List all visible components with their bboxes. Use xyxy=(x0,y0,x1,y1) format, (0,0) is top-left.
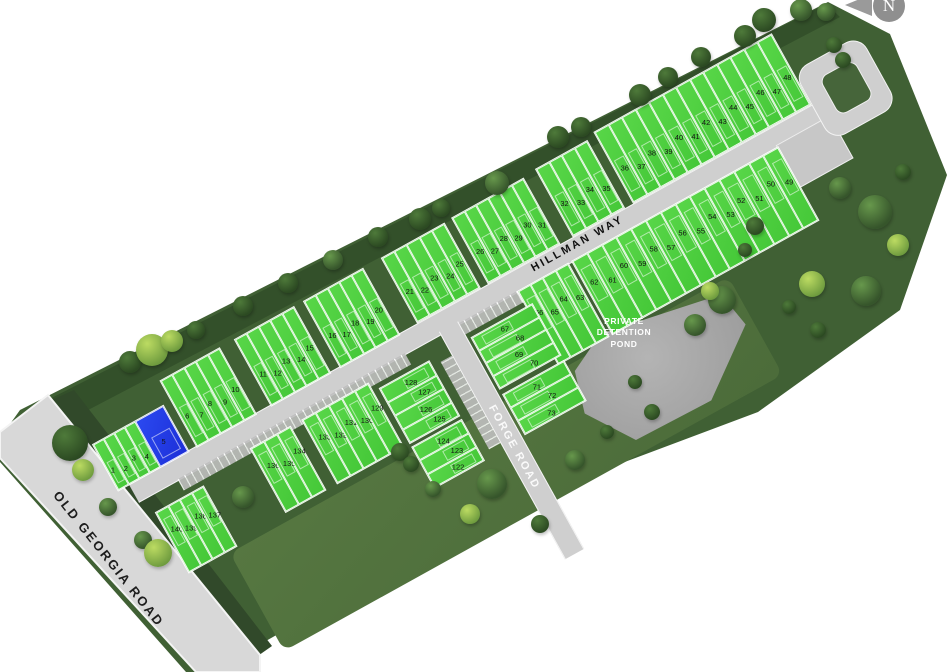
tree-icon xyxy=(233,296,253,316)
lot-number: 13 xyxy=(282,357,290,364)
lot-number: 44 xyxy=(729,104,737,111)
lot-number: 25 xyxy=(455,260,463,267)
tree-icon xyxy=(817,3,835,21)
tree-icon xyxy=(782,300,796,314)
lot-number: 56 xyxy=(678,229,686,236)
tree-icon xyxy=(323,250,343,270)
lot-number: 10 xyxy=(231,385,239,392)
detention-pond-label: PRIVATE DETENTION POND xyxy=(570,316,678,350)
lot-number: 7 xyxy=(200,412,204,419)
tree-icon xyxy=(460,504,480,524)
lot-number: 11 xyxy=(259,370,267,377)
lot-number: 49 xyxy=(785,179,793,186)
lot-number: 32 xyxy=(561,200,569,207)
lot-number: 124 xyxy=(437,437,450,444)
lot-number: 14 xyxy=(297,357,305,364)
tree-icon xyxy=(790,0,812,21)
tree-icon xyxy=(232,486,254,508)
lot-number: 26 xyxy=(476,248,484,255)
lot-number: 59 xyxy=(638,260,646,267)
lot-number: 5 xyxy=(162,438,166,445)
lot-number: 8 xyxy=(208,399,212,406)
tree-icon xyxy=(746,217,764,235)
tree-icon xyxy=(738,243,752,257)
lot-number: 31 xyxy=(538,221,546,228)
lot-number: 46 xyxy=(756,89,764,96)
lot-number: 38 xyxy=(647,149,655,156)
tree-icon xyxy=(829,177,851,199)
lot-number: 30 xyxy=(523,222,531,229)
lot-number: 42 xyxy=(702,119,710,126)
lot-number: 122 xyxy=(452,464,465,471)
lot-number: 3 xyxy=(132,455,136,462)
tree-icon xyxy=(628,375,642,389)
lot-number: 69 xyxy=(515,351,523,358)
tree-icon xyxy=(684,314,706,336)
lot-number: 61 xyxy=(609,277,617,284)
tree-icon xyxy=(810,322,826,338)
tree-icon xyxy=(600,425,614,439)
lot-number: 12 xyxy=(274,370,282,377)
tree-icon xyxy=(701,282,719,300)
lot-number: 123 xyxy=(451,447,464,454)
tree-icon xyxy=(629,84,651,106)
building-footprint xyxy=(151,428,181,459)
tree-icon xyxy=(477,469,507,499)
lot-number: 51 xyxy=(756,195,764,202)
lot-number: 2 xyxy=(124,465,128,472)
lot-number: 23 xyxy=(430,274,438,281)
lot-number: 40 xyxy=(675,134,683,141)
lot-number: 24 xyxy=(446,273,454,280)
tree-icon xyxy=(887,234,909,256)
lot-number: 45 xyxy=(746,103,754,110)
lot-number: 28 xyxy=(499,235,507,242)
lot-number: 65 xyxy=(551,309,559,316)
tree-icon xyxy=(368,227,388,247)
lot-number: 127 xyxy=(418,389,431,396)
lot-number: 50 xyxy=(767,180,775,187)
tree-icon xyxy=(72,459,94,481)
lot-number: 20 xyxy=(375,306,383,313)
lot-number: 71 xyxy=(533,383,541,390)
tree-icon xyxy=(571,117,591,137)
lot-number: 68 xyxy=(516,334,524,341)
lot-number: 9 xyxy=(223,399,227,406)
lot-number: 41 xyxy=(692,133,700,140)
lot-number: 29 xyxy=(514,234,522,241)
tree-icon xyxy=(403,456,419,472)
lot-number: 60 xyxy=(620,262,628,269)
tree-icon xyxy=(52,425,88,461)
lot-number: 33 xyxy=(577,199,585,206)
lot-number: 73 xyxy=(547,409,555,416)
north-arrow-triangle xyxy=(845,0,872,16)
lot-number: 53 xyxy=(726,211,734,218)
tree-icon xyxy=(278,273,298,293)
lot-number: 22 xyxy=(421,287,429,294)
tree-icon xyxy=(485,171,509,195)
lot-number: 54 xyxy=(708,213,716,220)
tree-icon xyxy=(851,276,881,306)
tree-icon xyxy=(895,164,911,180)
lot-number: 57 xyxy=(667,244,675,251)
lot-number: 16 xyxy=(328,332,336,339)
lot-number: 1 xyxy=(111,466,115,473)
lot-number: 15 xyxy=(305,344,313,351)
lot-number: 129 xyxy=(370,404,383,411)
lot-number: 39 xyxy=(665,148,673,155)
lot-number: 47 xyxy=(773,88,781,95)
lot-number: 4 xyxy=(145,453,149,460)
lot-number: 128 xyxy=(405,378,418,385)
tree-icon xyxy=(691,47,711,67)
tree-icon xyxy=(734,25,756,47)
lot-number: 27 xyxy=(491,247,499,254)
lot-number: 67 xyxy=(501,326,509,333)
lot-number: 70 xyxy=(530,360,538,367)
tree-icon xyxy=(432,199,450,217)
lot-number: 52 xyxy=(737,197,745,204)
tree-icon xyxy=(644,404,660,420)
tree-icon xyxy=(144,539,172,567)
lot-number: 17 xyxy=(343,331,351,338)
tree-icon xyxy=(799,271,825,297)
tree-icon xyxy=(409,208,431,230)
lot-number: 126 xyxy=(420,406,433,413)
site-plan-map: HILLMAN WAY FORGE ROAD 12345678910111213… xyxy=(0,0,947,672)
tree-icon xyxy=(547,126,569,148)
lot-number: 35 xyxy=(602,185,610,192)
tree-icon xyxy=(752,8,776,32)
lot-number: 43 xyxy=(719,118,727,125)
tree-icon xyxy=(658,67,678,87)
lot-number: 62 xyxy=(590,278,598,285)
tree-icon xyxy=(858,195,892,229)
lot-number: 72 xyxy=(548,392,556,399)
tree-icon xyxy=(531,515,549,533)
lot-number: 134 xyxy=(293,448,306,455)
tree-icon xyxy=(835,52,851,68)
tree-icon xyxy=(565,450,585,470)
lot-number: 63 xyxy=(576,295,584,302)
tree-icon xyxy=(826,37,842,53)
lot-number: 18 xyxy=(351,319,359,326)
lot-number: 55 xyxy=(697,228,705,235)
tree-icon xyxy=(187,321,205,339)
lot-number: 37 xyxy=(637,163,645,170)
tree-icon xyxy=(425,481,441,497)
lot-number: 58 xyxy=(649,245,657,252)
tree-icon xyxy=(99,498,117,516)
lot-number: 19 xyxy=(366,318,374,325)
lot-number: 137 xyxy=(209,511,222,518)
lot-number: 36 xyxy=(620,164,628,171)
lot-number: 125 xyxy=(433,416,446,423)
lot-number: 21 xyxy=(405,288,413,295)
lot-number: 64 xyxy=(560,295,568,302)
lot-number: 48 xyxy=(783,74,791,81)
lot-number: 34 xyxy=(586,186,594,193)
lot-number: 6 xyxy=(185,412,189,419)
tree-icon xyxy=(161,330,183,352)
